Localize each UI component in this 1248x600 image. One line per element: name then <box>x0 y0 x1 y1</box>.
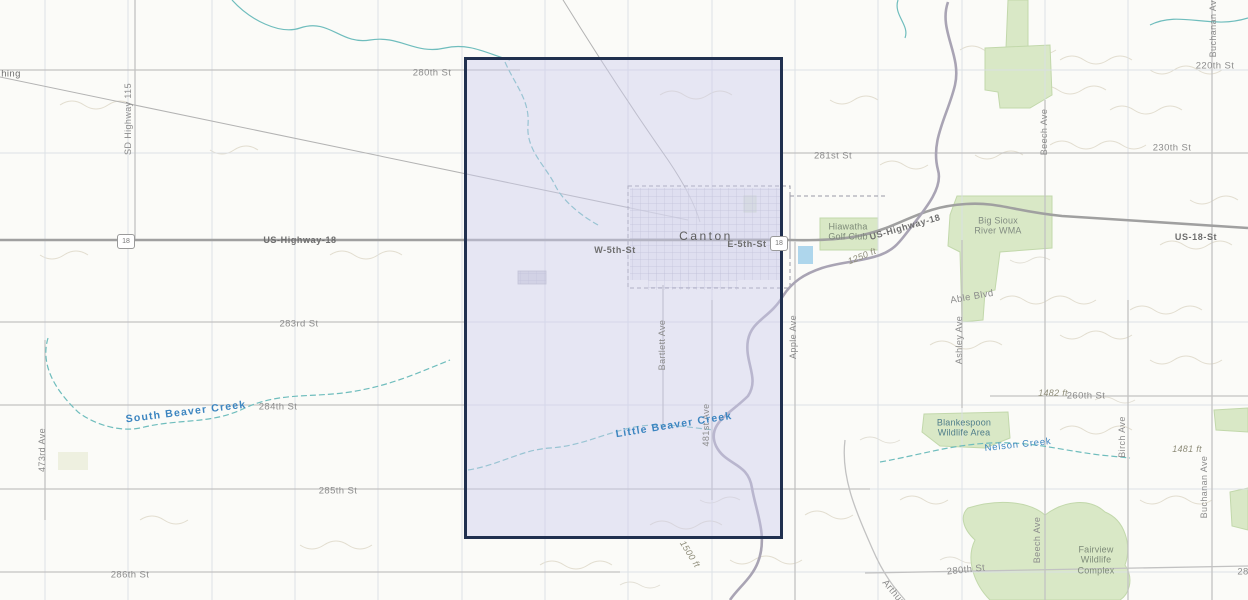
selection-extent-box[interactable] <box>464 57 783 539</box>
road-label-us-18-st: US-18-St <box>1175 232 1217 242</box>
road-label-w-5th-st: W-5th-St <box>594 245 636 255</box>
road-label-sd-highway-115: SD Highway 115 <box>123 83 133 155</box>
road-label-bartlett-ave: Bartlett Ave <box>657 320 667 371</box>
road-label-284th-st: 284th St <box>259 402 298 413</box>
contour-label-1481ft: 1481 ft <box>1172 444 1202 454</box>
road-label-230th-st: 230th St <box>1153 143 1192 154</box>
road-label-buchanan-ave-north: Buchanan Ave <box>1208 0 1218 57</box>
road-label-220th-st: 220th St <box>1196 61 1235 72</box>
map-canvas[interactable]: hing 280th St 220th St 230th St 281st St… <box>0 0 1248 600</box>
road-label-260th-st: 260th St <box>1067 391 1106 402</box>
road-label-beech-ave-south: Beech Ave <box>1032 517 1042 563</box>
road-label-ashley-ave: Ashley Ave <box>954 316 964 364</box>
us18-shield-west: 18 <box>117 234 135 249</box>
road-label-286th-st: 286th St <box>111 570 150 581</box>
road-label-280th-st-nw: 280th St <box>413 68 452 79</box>
road-label-280th-st-edge-partial: 28 <box>1237 567 1248 578</box>
road-label-buchanan-ave-south: Buchanan Ave <box>1199 456 1209 519</box>
us18-shield-east: 18 <box>770 236 788 251</box>
road-label-473rd-ave: 473rd Ave <box>37 428 47 472</box>
area-label-big-sioux-river-wma: Big Sioux River WMA <box>966 216 1030 237</box>
place-label-canton: Canton <box>679 229 733 243</box>
road-label-beech-ave-north: Beech Ave <box>1039 109 1049 155</box>
road-label-285th-st: 285th St <box>319 486 358 497</box>
road-label-birch-ave: Birch Ave <box>1117 416 1127 457</box>
contour-label-1482ft: 1482 ft <box>1038 388 1068 398</box>
area-label-blankespoon-wildlife-area: Blankespoon Wildlife Area <box>923 418 1005 439</box>
pond <box>798 246 813 264</box>
road-label-283rd-st: 283rd St <box>279 319 318 330</box>
road-label-e-5th-st: E-5th-St <box>727 239 766 249</box>
road-label-apple-ave: Apple Ave <box>788 315 798 359</box>
place-label-worthing-partial: hing <box>1 69 21 80</box>
area-label-fairview-wildlife-complex: Fairview Wildlife Complex <box>1068 544 1124 575</box>
road-label-us-highway-18-west: US-Highway-18 <box>263 235 336 245</box>
area-label-hiawatha-golf-club: Hiawatha Golf Club <box>819 222 877 243</box>
road-label-281st-st: 281st St <box>814 151 852 162</box>
